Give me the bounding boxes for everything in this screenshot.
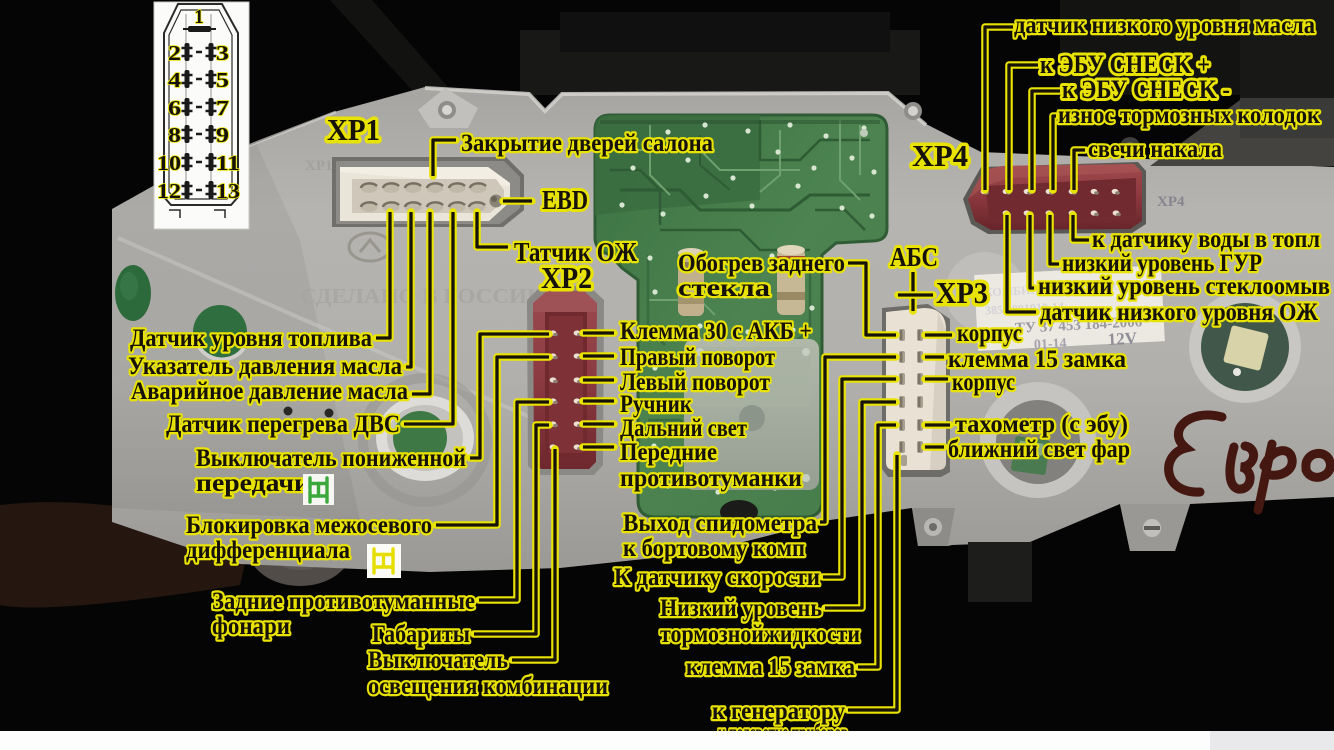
svg-text:ХР3: ХР3 [936, 275, 988, 310]
svg-text:СДЕЛАНО В РОССИИ: СДЕЛАНО В РОССИИ [300, 284, 545, 308]
svg-text:корпус: корпус [957, 320, 1022, 347]
svg-text:Выход спидометра: Выход спидометра [623, 510, 817, 537]
svg-text:стекла: стекла [678, 275, 771, 302]
svg-text:к датчику воды в топл: к датчику воды в топл [1092, 226, 1320, 253]
svg-text:Указатель давления масла: Указатель давления масла [128, 353, 402, 380]
svg-text:тахометр (с эбу): тахометр (с эбу) [955, 411, 1128, 438]
svg-text:Выключатель: Выключатель [368, 647, 508, 674]
svg-text:Дальний свет: Дальний свет [620, 415, 747, 442]
svg-text:ХР1: ХР1 [305, 158, 333, 174]
svg-text:Клемма 30 с АКБ +: Клемма 30 с АКБ + [620, 318, 812, 345]
svg-text:к бортовому комп: к бортовому комп [623, 535, 805, 562]
svg-text:датчик низкого уровня ОЖ: датчик низкого уровня ОЖ [1040, 299, 1318, 326]
svg-text:К датчику скорости: К датчику скорости [614, 564, 820, 591]
svg-text:датчик низкого уровня масла: датчик низкого уровня масла [1014, 12, 1315, 39]
svg-text:Закрытие дверей салона: Закрытие дверей салона [461, 130, 713, 157]
svg-text:износ тормозных колодок: износ тормозных колодок [1058, 102, 1321, 129]
svg-text:освещения комбинации: освещения комбинации [368, 673, 608, 700]
svg-text:Задние противотуманные: Задние противотуманные [212, 588, 475, 615]
svg-text:3: 3 [216, 41, 229, 65]
svg-text:Правый поворот: Правый поворот [620, 344, 775, 371]
svg-text:XP1: XP1 [327, 112, 380, 147]
svg-text:Низкий уровень: Низкий уровень [660, 595, 822, 622]
svg-text:Датчик уровня топлива: Датчик уровня топлива [130, 325, 372, 352]
svg-text:передачи: передачи [196, 470, 310, 497]
svg-text:свечи накала: свечи накала [1088, 136, 1222, 163]
svg-text:9: 9 [216, 123, 229, 147]
svg-text:Передние: Передние [620, 439, 717, 466]
svg-text:противотуманки: противотуманки [620, 465, 802, 492]
svg-text:дифференциала: дифференциала [186, 537, 350, 564]
svg-text:4: 4 [168, 68, 182, 92]
svg-text:Датчик перегрева ДВС: Датчик перегрева ДВС [166, 411, 400, 438]
svg-text:EBD: EBD [542, 185, 588, 215]
svg-text:ХР4: ХР4 [1157, 194, 1185, 210]
svg-text:8: 8 [168, 123, 181, 147]
svg-text:7: 7 [216, 96, 229, 120]
svg-text:фонари: фонари [212, 613, 290, 640]
svg-text:к ЭБУ CHECK -: к ЭБУ CHECK - [1062, 75, 1230, 104]
svg-text:низкий уровень стеклоомыв: низкий уровень стеклоомыв [1038, 273, 1330, 300]
svg-text:Аварийное давление масла: Аварийное давление масла [131, 378, 408, 405]
svg-text:ближний свет фар: ближний свет фар [948, 436, 1130, 463]
svg-text:корпус: корпус [952, 369, 1015, 396]
svg-text:Выключатель пониженной: Выключатель пониженной [196, 445, 466, 472]
svg-text:клемма 15 замка: клемма 15 замка [686, 654, 855, 681]
svg-text:10: 10 [157, 151, 181, 175]
svg-text:1: 1 [195, 6, 204, 28]
svg-text:XP4: XP4 [912, 138, 968, 173]
svg-text:2: 2 [168, 41, 181, 65]
svg-text:Обогрев заднего: Обогрев заднего [678, 250, 845, 277]
svg-text:6: 6 [168, 96, 181, 120]
svg-text:5: 5 [216, 68, 229, 92]
svg-text:12: 12 [157, 179, 181, 203]
svg-text:13: 13 [216, 179, 240, 203]
svg-text:Ручник: Ручник [620, 391, 692, 418]
svg-text:Габариты: Габариты [372, 621, 470, 648]
svg-text:ХР2: ХР2 [541, 260, 592, 295]
svg-text:11: 11 [216, 151, 240, 175]
svg-text:АБС: АБС [890, 242, 938, 272]
svg-text:тормознойжидкости: тормознойжидкости [660, 621, 860, 648]
svg-text:Блокировка межосевого: Блокировка межосевого [186, 512, 432, 539]
